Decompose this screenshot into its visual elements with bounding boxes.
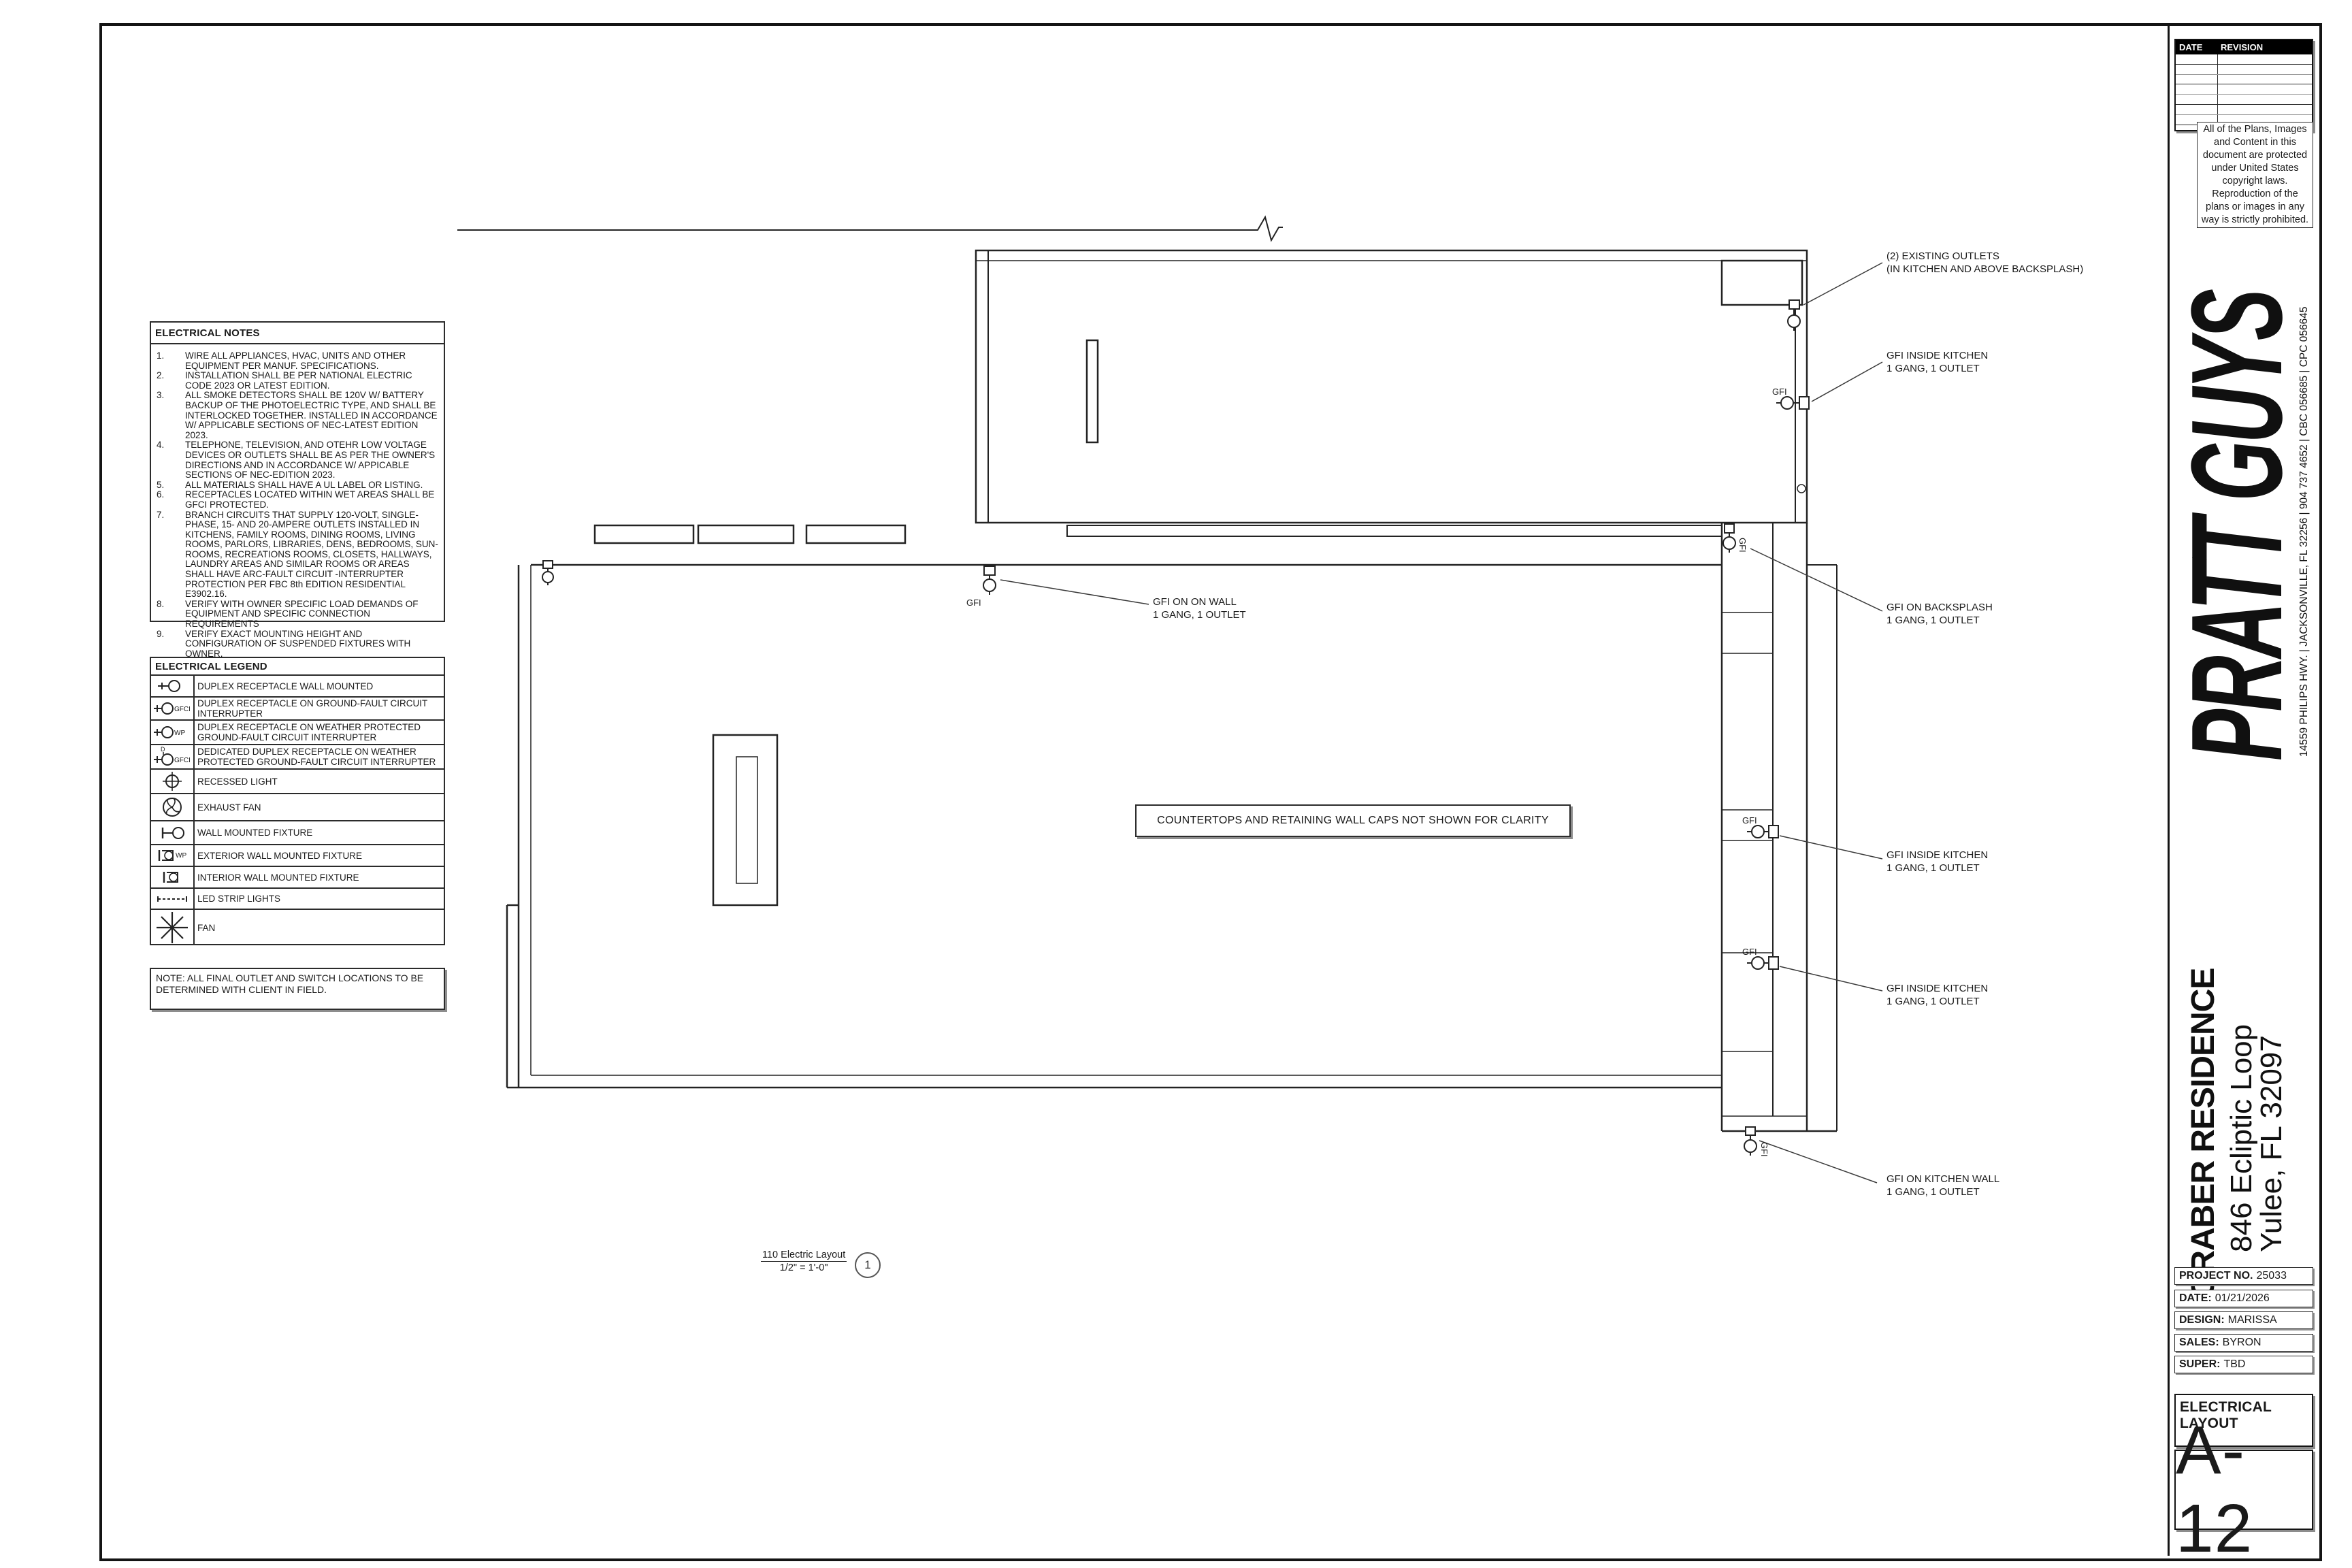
callout-existing-outlets: (2) EXISTING OUTLETS(IN KITCHEN AND ABOV… [1886, 250, 2083, 276]
svg-text:WP: WP [176, 852, 186, 860]
duplex-receptacle-gfci-icon: GFCI [151, 698, 195, 719]
clarity-note-box: COUNTERTOPS AND RETAINING WALL CAPS NOT … [1135, 804, 1571, 837]
svg-text:GFI: GFI [1742, 947, 1757, 957]
island-inner [736, 757, 757, 883]
legend-row-duplex-gfci: GFCI DUPLEX RECEPTACLE ON GROUND-FAULT C… [151, 698, 444, 721]
svg-text:GFI: GFI [1742, 815, 1757, 826]
project-date-row: DATE:01/21/2026 [2174, 1290, 2313, 1307]
legend-row-duplex-receptacle: DUPLEX RECEPTACLE WALL MOUNTED [151, 676, 444, 698]
callout-gfi-on-wall: GFI ON ON WALL1 GANG, 1 OUTLET [1153, 596, 1246, 621]
legend-row-exhaust-fan: EXHAUST FAN [151, 794, 444, 821]
svg-text:GFCI: GFCI [174, 757, 191, 764]
legend-row-exterior-wall-fixture: WP EXTERIOR WALL MOUNTED FIXTURE [151, 845, 444, 867]
project-sales-row: SALES:BYRON [2174, 1334, 2313, 1352]
recessed-light-icon [151, 770, 195, 793]
project-info-table: PROJECT NO.25033 DATE:01/21/2026 DESIGN:… [2174, 1267, 2313, 1378]
callout-gfi-backsplash: GFI ON BACKSPLASH1 GANG, 1 OUTLET [1886, 602, 1993, 627]
drawing-sheet: GFI GFI GFI GFI [0, 0, 2352, 1568]
svg-text:GFI: GFI [1759, 1142, 1769, 1157]
duplex-receptacle-wp-icon: WP [151, 721, 195, 744]
project-super-row: SUPER:TBD [2174, 1356, 2313, 1373]
kitchen-structure-outline [976, 250, 1807, 523]
drawing-name: 110 Electric Layout [761, 1249, 847, 1262]
outlet-symbol-deck-corner [542, 561, 553, 585]
gfi-symbol-inside-kitchen-1: GFI [1772, 387, 1809, 409]
revision-date-header: DATE [2176, 42, 2218, 52]
drawing-scale: 1/2" = 1'-0" [761, 1262, 847, 1273]
callout-gfi-inside-kitchen-2: GFI INSIDE KITCHEN1 GANG, 1 OUTLET [1886, 849, 1988, 875]
legend-row-interior-wall-fixture: INTERIOR WALL MOUNTED FIXTURE [151, 867, 444, 889]
project-design-row: DESIGN:MARISSA [2174, 1311, 2313, 1329]
electrical-legend-box: ELECTRICAL LEGEND DUPLEX RECEPTACLE WALL… [150, 657, 445, 945]
counter-edge [1067, 525, 1722, 536]
wall-fixture-mark [1797, 485, 1806, 493]
svg-text:GFCI: GFCI [174, 706, 191, 713]
revision-row [2176, 84, 2312, 95]
grade-line [457, 217, 1283, 240]
revision-row [2176, 65, 2312, 75]
electrical-notes-box: ELECTRICAL NOTES 1.WIRE ALL APPLIANCES, … [150, 321, 445, 622]
interior-wall-mounted-fixture-icon [151, 867, 195, 887]
svg-text:WP: WP [174, 730, 185, 737]
wall-mounted-fixture-icon [151, 821, 195, 844]
exhaust-fan-icon [151, 794, 195, 820]
revision-table: DATE REVISION [2174, 39, 2313, 131]
legend-row-recessed-light: RECESSED LIGHT [151, 770, 444, 794]
electrical-notes-title: ELECTRICAL NOTES [151, 323, 444, 344]
callout-gfi-inside-kitchen-1: GFI INSIDE KITCHEN1 GANG, 1 OUTLET [1886, 350, 1988, 375]
gfi-symbol-on-wall: GFI [966, 566, 996, 608]
svg-text:GFI: GFI [1737, 538, 1748, 553]
dedicated-duplex-receptacle-gfci-icon: DGFCI [151, 745, 195, 768]
step-1 [595, 525, 693, 543]
revision-header: REVISION [2218, 42, 2312, 52]
legend-row-duplex-wp: WP DUPLEX RECEPTACLE ON WEATHER PROTECTE… [151, 721, 444, 745]
revision-row [2176, 105, 2312, 115]
drawing-title-label: 110 Electric Layout 1/2" = 1'-0" [761, 1249, 847, 1273]
step-2 [698, 525, 794, 543]
revision-row [2176, 95, 2312, 105]
drawing-number-bubble: 1 [855, 1252, 881, 1278]
svg-text:GFI: GFI [1772, 387, 1787, 397]
gfi-symbol-existing-outlets [1788, 300, 1800, 331]
exterior-wall-mounted-fixture-icon: WP [151, 845, 195, 866]
leader-lines [1000, 263, 1882, 1183]
fan-icon [151, 910, 195, 945]
sheet-number: A-12 [2174, 1450, 2313, 1530]
callout-gfi-kitchen-wall: GFI ON KITCHEN WALL1 GANG, 1 OUTLET [1886, 1173, 1999, 1198]
legend-row-fan: FAN [151, 910, 444, 945]
svg-text:D: D [161, 746, 165, 753]
kitchen-wall-notch [1722, 261, 1802, 305]
duplex-receptacle-icon [151, 676, 195, 696]
electrical-notes-list: 1.WIRE ALL APPLIANCES, HVAC, UNITS AND O… [151, 344, 444, 659]
electrical-legend-title: ELECTRICAL LEGEND [151, 658, 444, 676]
legend-row-led-strip: LED STRIP LIGHTS [151, 889, 444, 910]
revision-table-header: DATE REVISION [2176, 40, 2312, 54]
legend-row-dedicated-duplex-gfci: DGFCI DEDICATED DUPLEX RECEPTACLE ON WEA… [151, 745, 444, 770]
field-note-box: NOTE: ALL FINAL OUTLET AND SWITCH LOCATI… [150, 968, 445, 1010]
svg-text:GFI: GFI [966, 598, 981, 608]
step-3 [806, 525, 905, 543]
legend-row-wall-mounted-fixture: WALL MOUNTED FIXTURE [151, 821, 444, 845]
led-strip-lights-icon [151, 889, 195, 909]
revision-row [2176, 75, 2312, 85]
island-outline [713, 735, 777, 905]
gfi-symbol-backsplash: GFI [1723, 524, 1748, 553]
revision-row [2176, 54, 2312, 65]
copyright-notice: All of the Plans, Images and Content in … [2197, 122, 2313, 228]
project-number-row: PROJECT NO.25033 [2174, 1267, 2313, 1285]
door-element [1087, 340, 1098, 442]
callout-gfi-inside-kitchen-3: GFI INSIDE KITCHEN1 GANG, 1 OUTLET [1886, 983, 1988, 1008]
